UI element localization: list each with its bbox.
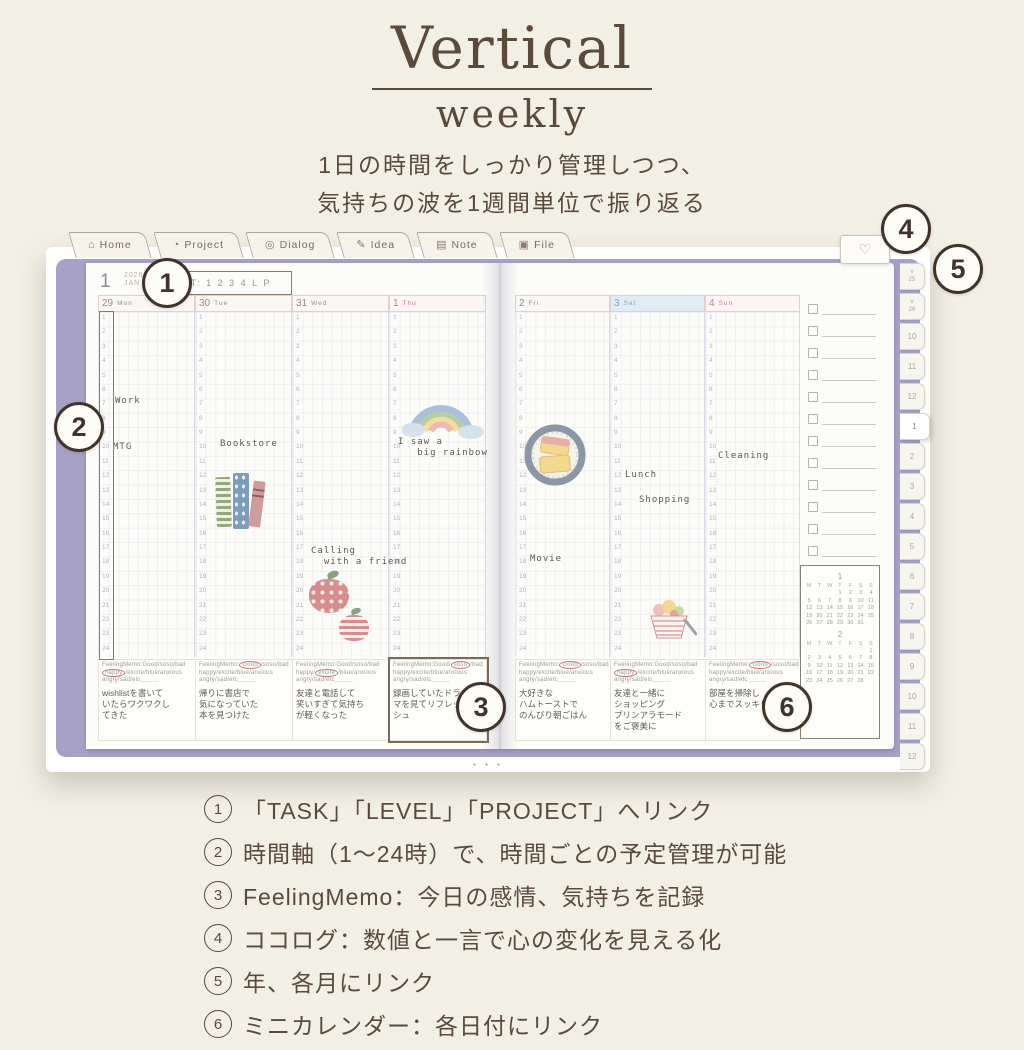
hour-tick: 2 bbox=[393, 328, 397, 335]
day-grid[interactable]: 123456789101112131415161718192021222324C… bbox=[705, 312, 800, 657]
hour-tick: 1 bbox=[296, 314, 300, 321]
hour-tick: 13 bbox=[199, 487, 206, 494]
feeling-memo-options: angry/sad/etc＿＿＿ bbox=[519, 677, 607, 685]
day-column-thu[interactable]: 1Thu123456789101112131415161718192021222… bbox=[389, 295, 486, 657]
page-gutter bbox=[482, 263, 518, 749]
pencil-icon: ✎ bbox=[356, 240, 365, 251]
legend-text: ミニカレンダー：各日付にリンク bbox=[243, 1007, 603, 1041]
mini-calendar-day bbox=[855, 648, 865, 656]
feeling-memo-options: happy/excite/blue/anxious bbox=[614, 670, 702, 678]
page-subtitle: weekly bbox=[0, 92, 1024, 136]
mini-calendar-day[interactable]: 17 bbox=[814, 670, 824, 678]
hour-tick: 2 bbox=[614, 328, 618, 335]
day-header: 3Sat bbox=[610, 295, 705, 312]
day-of-week: Sat bbox=[624, 300, 637, 307]
hour-tick: 15 bbox=[296, 515, 303, 522]
hour-tick: 5 bbox=[393, 372, 397, 379]
feeling-memo-cell[interactable]: FeelingMemo:Good/soso/badhappy/excite/bl… bbox=[515, 659, 611, 741]
mini-calendar: 1MTWTFSS12345678910111213141516171819202… bbox=[800, 565, 880, 739]
hour-tick: 12 bbox=[199, 472, 206, 479]
index-tab-10[interactable]: 10 bbox=[900, 683, 925, 710]
hour-tick: 13 bbox=[296, 487, 303, 494]
legend-item: 3FeelingMemo：今日の感情、気持ちを記録 bbox=[204, 878, 787, 912]
day-grid[interactable]: 123456789101112131415161718192021222324B… bbox=[195, 312, 292, 657]
hour-tick: 16 bbox=[393, 530, 400, 537]
hour-tick: 4 bbox=[519, 357, 523, 364]
checkbox[interactable] bbox=[808, 546, 818, 556]
checkbox[interactable] bbox=[808, 502, 818, 512]
circled-mood: Good bbox=[749, 661, 770, 669]
mini-calendar-day[interactable]: 21 bbox=[825, 613, 835, 621]
mini-calendar-day[interactable]: 5 bbox=[804, 598, 814, 606]
checkbox[interactable] bbox=[808, 370, 818, 380]
mini-calendar-day[interactable]: 1 bbox=[835, 590, 845, 598]
hour-tick: 8 bbox=[709, 415, 713, 422]
checkbox[interactable] bbox=[808, 480, 818, 490]
feeling-memo-options: FeelingMemo:Good/soso/bad bbox=[199, 662, 289, 670]
hour-tick: 12 bbox=[614, 472, 621, 479]
parfait-sticker bbox=[641, 600, 697, 655]
hour-tick: 20 bbox=[199, 587, 206, 594]
handwritten-entry: Shopping bbox=[639, 495, 690, 506]
mini-calendar-day[interactable]: 6 bbox=[814, 598, 824, 606]
mini-calendar-month-title[interactable]: 1 bbox=[804, 572, 876, 581]
checklist-row[interactable] bbox=[808, 315, 876, 337]
hour-tick: 20 bbox=[614, 587, 621, 594]
legend-text: FeelingMemo：今日の感情、気持ちを記録 bbox=[243, 878, 705, 912]
mini-calendar-dow: W bbox=[825, 640, 835, 648]
feeling-memo-note: wishlistを書いて いたらワクワクし てきた bbox=[102, 688, 192, 721]
mini-calendar-day[interactable]: 16 bbox=[804, 670, 814, 678]
mini-calendar-day[interactable]: 28 bbox=[825, 620, 835, 628]
checkbox[interactable] bbox=[808, 524, 818, 534]
hour-tick: 23 bbox=[393, 630, 400, 637]
hour-tick: 4 bbox=[199, 357, 203, 364]
mini-calendar-day[interactable]: 12 bbox=[804, 605, 814, 613]
mini-calendar-day bbox=[845, 648, 855, 656]
mini-calendar-day[interactable]: 8 bbox=[835, 598, 845, 606]
hour-tick: 4 bbox=[393, 357, 397, 364]
hour-tick: 14 bbox=[519, 501, 526, 508]
mini-calendar-day[interactable]: 15 bbox=[866, 663, 876, 671]
hour-tick: 15 bbox=[519, 515, 526, 522]
circled-mood: Good bbox=[239, 661, 260, 669]
hour-tick: 15 bbox=[709, 515, 716, 522]
day-grid[interactable]: 123456789101112131415161718192021222324L… bbox=[610, 312, 705, 657]
checklist-row[interactable] bbox=[808, 337, 876, 359]
hour-tick: 23 bbox=[709, 630, 716, 637]
callout-6: 6 bbox=[762, 682, 812, 732]
tab-project[interactable]: ◔Project bbox=[157, 232, 240, 258]
mini-calendar-day[interactable]: 8 bbox=[866, 655, 876, 663]
mini-calendar-day[interactable]: 27 bbox=[845, 678, 855, 686]
title-underline bbox=[372, 88, 652, 90]
hour-tick: 15 bbox=[614, 515, 621, 522]
hour-tick: 16 bbox=[709, 530, 716, 537]
mini-calendar-day[interactable]: 12 bbox=[835, 663, 845, 671]
legend-item: 6ミニカレンダー：各日付にリンク bbox=[204, 1007, 787, 1041]
mini-calendar-dow: T bbox=[814, 582, 824, 590]
checklist-line bbox=[822, 348, 876, 359]
mini-calendar-day[interactable]: 30 bbox=[845, 620, 855, 628]
mini-calendar-day[interactable]: 21 bbox=[855, 670, 865, 678]
index-tab-6[interactable]: 6 bbox=[900, 563, 925, 590]
apples-sticker bbox=[307, 571, 371, 645]
hour-tick: 2 bbox=[709, 328, 713, 335]
year-label: 2026 bbox=[124, 272, 144, 280]
mini-calendar-day bbox=[835, 648, 845, 656]
hour-tick: 5 bbox=[296, 372, 300, 379]
checklist-line bbox=[822, 370, 876, 381]
mini-calendar-day[interactable]: 31 bbox=[855, 620, 865, 628]
mini-calendar-day[interactable]: 11 bbox=[825, 663, 835, 671]
books-sticker bbox=[216, 473, 262, 529]
mini-calendar-day[interactable]: 26 bbox=[804, 620, 814, 628]
mini-calendar-month-title[interactable]: 2 bbox=[804, 630, 876, 639]
feeling-memo-cell[interactable]: FeelingMemo:Good/soso/badhappy/excite/bl… bbox=[196, 659, 293, 741]
checklist-row[interactable] bbox=[808, 513, 876, 535]
hour-tick: 18 bbox=[614, 558, 621, 565]
tab-note[interactable]: ▤Note bbox=[420, 232, 494, 258]
index-tab-11[interactable]: 11 bbox=[900, 713, 925, 740]
mini-calendar-day[interactable]: 13 bbox=[814, 605, 824, 613]
hour-tick: 8 bbox=[519, 415, 523, 422]
hour-tick: 24 bbox=[296, 645, 303, 652]
mini-calendar-day[interactable]: 27 bbox=[814, 620, 824, 628]
hour-tick: 15 bbox=[199, 515, 206, 522]
hour-tick: 19 bbox=[709, 573, 716, 580]
handwritten-entry: I saw a big rainbow bbox=[398, 437, 488, 459]
hour-tick: 21 bbox=[199, 602, 206, 609]
checkbox[interactable] bbox=[808, 458, 818, 468]
hour-tick: 7 bbox=[614, 400, 618, 407]
hour-tick: 10 bbox=[614, 443, 621, 450]
mini-calendar-day[interactable]: 3 bbox=[855, 590, 865, 598]
hour-tick: 5 bbox=[199, 372, 203, 379]
mini-calendar-day[interactable]: 24 bbox=[855, 613, 865, 621]
index-tab-3[interactable]: 3 bbox=[900, 473, 925, 500]
index-tab-9[interactable]: 9 bbox=[900, 653, 925, 680]
hour-tick: 20 bbox=[709, 587, 716, 594]
hour-tick: 8 bbox=[393, 415, 397, 422]
hour-tick: 17 bbox=[614, 544, 621, 551]
checklist-line bbox=[822, 436, 876, 447]
checkbox[interactable] bbox=[808, 326, 818, 336]
day-column-sun[interactable]: 4Sun123456789101112131415161718192021222… bbox=[705, 295, 800, 657]
mini-calendar-day[interactable]: 1 bbox=[866, 648, 876, 656]
checklist-row[interactable] bbox=[808, 403, 876, 425]
day-of-week: Fri bbox=[529, 300, 540, 307]
hour-tick: 24 bbox=[199, 645, 206, 652]
feeling-memo-options: happy/excite/blue/anxious bbox=[709, 670, 797, 678]
hour-tick: 9 bbox=[709, 429, 713, 436]
hour-tick: 11 bbox=[296, 458, 303, 465]
legend-number-badge: 1 bbox=[204, 795, 232, 823]
hour-tick: 16 bbox=[296, 530, 303, 537]
index-tab-4[interactable]: 4 bbox=[900, 503, 925, 530]
hour-tick: 10 bbox=[709, 443, 716, 450]
hour-tick: 22 bbox=[519, 616, 526, 623]
mini-calendar-day bbox=[804, 648, 814, 656]
mini-calendar-day[interactable]: 14 bbox=[855, 663, 865, 671]
circled-mood: excite bbox=[315, 669, 338, 677]
day-date: 4 bbox=[709, 298, 715, 309]
hour-tick: 17 bbox=[709, 544, 716, 551]
hour-tick: 21 bbox=[296, 602, 303, 609]
mini-calendar-day[interactable]: 29 bbox=[835, 620, 845, 628]
mini-calendar-day[interactable]: 17 bbox=[855, 605, 865, 613]
toast-sticker bbox=[524, 424, 586, 491]
checklist-row[interactable] bbox=[808, 491, 876, 513]
legend-number-badge: 2 bbox=[204, 838, 232, 866]
hour-tick: 23 bbox=[519, 630, 526, 637]
circled-mood: soso bbox=[451, 661, 470, 669]
checkbox[interactable] bbox=[808, 304, 818, 314]
mini-calendar-day[interactable]: 11 bbox=[866, 598, 876, 606]
hour-tick: 19 bbox=[519, 573, 526, 580]
feeling-memo-row-right: FeelingMemo:Good/soso/badhappy/excite/bl… bbox=[515, 659, 801, 741]
hour-tick: 13 bbox=[393, 487, 400, 494]
mini-calendar-day[interactable]: 9 bbox=[845, 598, 855, 606]
callout-1: 1 bbox=[142, 258, 192, 308]
year-month-label: 2026 JAN bbox=[124, 272, 144, 288]
day-date: 3 bbox=[614, 298, 620, 309]
legend-item: 4ココログ：数値と一言で心の変化を見える化 bbox=[204, 921, 787, 955]
checklist-row[interactable] bbox=[808, 381, 876, 403]
callout-4: 4 bbox=[881, 204, 931, 254]
handwritten-entry: Work bbox=[115, 396, 141, 407]
callout-2: 2 bbox=[54, 402, 104, 452]
hour-tick: 11 bbox=[614, 458, 621, 465]
checklist-row[interactable] bbox=[808, 535, 876, 557]
day-column-wed[interactable]: 31Wed12345678910111213141516171819202122… bbox=[292, 295, 389, 657]
feeling-memo-options: angry/sad/etc＿＿＿ bbox=[102, 677, 192, 685]
feeling-memo-cell[interactable]: FeelingMemo:Good/soso/badhappy/excite/bl… bbox=[293, 659, 390, 741]
feeling-memo-cell[interactable]: FeelingMemo:Good/soso/badhappy/excite/bl… bbox=[611, 659, 706, 741]
feeling-memo-options: FeelingMemo:Good/soso/bad bbox=[393, 662, 483, 670]
hour-tick: 3 bbox=[199, 343, 203, 350]
feeling-memo-row-left: FeelingMemo:Good/soso/badhappy/excite/bl… bbox=[98, 659, 487, 741]
hour-tick: 4 bbox=[296, 357, 300, 364]
mini-calendar-day bbox=[814, 590, 824, 598]
mini-calendar-day[interactable]: 9 bbox=[804, 663, 814, 671]
mini-calendar-day[interactable]: 22 bbox=[866, 670, 876, 678]
hour-tick: 19 bbox=[296, 573, 303, 580]
feeling-memo-note: 大好きな ハムトーストで のんびり朝ごはん bbox=[519, 688, 607, 721]
mini-calendar-day[interactable]: 10 bbox=[814, 663, 824, 671]
day-column-sat[interactable]: 3Sat123456789101112131415161718192021222… bbox=[610, 295, 705, 657]
index-tab-7[interactable]: 7 bbox=[900, 593, 925, 620]
hour-tick: 18 bbox=[199, 558, 206, 565]
hour-tick: 3 bbox=[393, 343, 397, 350]
day-column-mon[interactable]: 29Mon12345678910111213141516171819202122… bbox=[98, 295, 195, 657]
mini-calendar-day[interactable]: 28 bbox=[855, 678, 865, 686]
hour-tick: 7 bbox=[393, 400, 397, 407]
mini-calendar-day[interactable]: 20 bbox=[845, 670, 855, 678]
hour-tick: 2 bbox=[199, 328, 203, 335]
legend-number-badge: 5 bbox=[204, 967, 232, 995]
index-tab-12[interactable]: 12 bbox=[900, 383, 925, 410]
hour-tick: 9 bbox=[614, 429, 618, 436]
index-tab-12[interactable]: 12 bbox=[900, 743, 925, 770]
mini-calendar-day[interactable]: 20 bbox=[814, 613, 824, 621]
mini-calendar-day[interactable]: 18 bbox=[866, 605, 876, 613]
day-grid[interactable]: 123456789101112131415161718192021222324I… bbox=[389, 312, 486, 657]
target-icon: ◎ bbox=[265, 240, 275, 251]
mini-calendar-day[interactable]: 10 bbox=[855, 598, 865, 606]
index-tab-Y25[interactable]: Y25 bbox=[900, 263, 925, 290]
feeling-memo-cell[interactable]: FeelingMemo:Good/soso/badhappy/excite/bl… bbox=[98, 659, 196, 741]
mini-calendar-day[interactable]: 13 bbox=[845, 663, 855, 671]
circled-mood: Good bbox=[559, 661, 580, 669]
mini-calendar-day[interactable]: 25 bbox=[866, 613, 876, 621]
mini-calendar-day[interactable]: 23 bbox=[845, 613, 855, 621]
hour-tick: 14 bbox=[296, 501, 303, 508]
feeling-memo-options: angry/sad/etc＿＿＿ bbox=[614, 677, 702, 685]
checkbox[interactable] bbox=[808, 392, 818, 402]
hour-tick: 5 bbox=[519, 372, 523, 379]
hour-tick: 17 bbox=[296, 544, 303, 551]
legend-text: 年、各月にリンク bbox=[243, 964, 435, 998]
hour-tick: 6 bbox=[519, 386, 523, 393]
tab-idea[interactable]: ✎Idea bbox=[340, 232, 411, 258]
mini-calendar-day[interactable]: 24 bbox=[814, 678, 824, 686]
hour-tick: 1 bbox=[614, 314, 618, 321]
tab-label: Note bbox=[451, 239, 477, 251]
mini-calendar-grid: MTWTFSS123456789101112131415161718192021… bbox=[804, 582, 876, 628]
legend-text: 時間軸（1～24時）で、時間ごとの予定管理が可能 bbox=[243, 835, 787, 869]
mini-calendar-day bbox=[866, 620, 876, 628]
day-grid[interactable]: 123456789101112131415161718192021222324C… bbox=[292, 312, 389, 657]
hour-tick: 20 bbox=[393, 587, 400, 594]
hour-tick: 21 bbox=[709, 602, 716, 609]
hour-tick: 1 bbox=[393, 314, 397, 321]
checkbox[interactable] bbox=[808, 436, 818, 446]
hour-tick: 22 bbox=[199, 616, 206, 623]
checklist-line bbox=[822, 414, 876, 425]
index-tab-8[interactable]: 8 bbox=[900, 623, 925, 650]
day-date: 29 bbox=[102, 298, 113, 309]
mini-calendar-day[interactable]: 19 bbox=[835, 670, 845, 678]
mini-calendar-day[interactable]: 15 bbox=[835, 605, 845, 613]
hour-tick: 6 bbox=[709, 386, 713, 393]
day-header: 1Thu bbox=[389, 295, 486, 312]
tab-file[interactable]: ▣File bbox=[503, 232, 571, 258]
mini-calendar-dow: F bbox=[845, 582, 855, 590]
checklist-row[interactable] bbox=[808, 359, 876, 381]
day-column-tue[interactable]: 30Tue12345678910111213141516171819202122… bbox=[195, 295, 292, 657]
index-tab-Y26[interactable]: Y26 bbox=[900, 293, 925, 320]
hour-tick: 6 bbox=[296, 386, 300, 393]
mini-calendar-day[interactable]: 7 bbox=[855, 655, 865, 663]
mini-calendar-day[interactable]: 2 bbox=[845, 590, 855, 598]
mini-calendar-day[interactable]: 22 bbox=[835, 613, 845, 621]
mini-calendar-day[interactable]: 16 bbox=[845, 605, 855, 613]
mini-calendar-day[interactable]: 23 bbox=[804, 678, 814, 686]
tab-label: Project bbox=[184, 239, 224, 251]
mini-calendar-day[interactable]: 4 bbox=[825, 655, 835, 663]
hour-tick: 6 bbox=[614, 386, 618, 393]
checklist-row[interactable] bbox=[808, 425, 876, 447]
checklist-row[interactable] bbox=[808, 469, 876, 491]
hour-tick: 22 bbox=[393, 616, 400, 623]
hour-tick: 1 bbox=[519, 314, 523, 321]
hour-tick: 24 bbox=[614, 645, 621, 652]
month-number[interactable]: 1 bbox=[100, 271, 111, 293]
mini-calendar-day[interactable]: 26 bbox=[835, 678, 845, 686]
hour-tick: 17 bbox=[519, 544, 526, 551]
feeling-memo-note: 友達と電話して 笑いすぎて気持ち が軽くなった bbox=[296, 688, 386, 721]
hour-tick: 8 bbox=[199, 415, 203, 422]
checkbox[interactable] bbox=[808, 348, 818, 358]
tab-dialog[interactable]: ◎Dialog bbox=[249, 232, 331, 258]
tab-home[interactable]: ⌂Home bbox=[72, 232, 148, 258]
hour-tick: 4 bbox=[614, 357, 618, 364]
checklist-line bbox=[822, 326, 876, 337]
index-tab-2[interactable]: 2 bbox=[900, 443, 925, 470]
mini-calendar-day[interactable]: 7 bbox=[825, 598, 835, 606]
index-tab-1[interactable]: 1 bbox=[900, 413, 930, 440]
hour-tick: 3 bbox=[519, 343, 523, 350]
feeling-memo-options: happy/excite/blue/anxious bbox=[199, 670, 289, 678]
hour-tick: 12 bbox=[709, 472, 716, 479]
checklist-row[interactable] bbox=[808, 293, 876, 315]
hour-tick: 20 bbox=[296, 587, 303, 594]
mini-calendar-day[interactable]: 4 bbox=[866, 590, 876, 598]
folder-icon: ▣ bbox=[519, 240, 529, 251]
hour-tick: 22 bbox=[709, 616, 716, 623]
mini-calendar-day[interactable]: 2 bbox=[804, 655, 814, 663]
hour-tick: 12 bbox=[393, 472, 400, 479]
hour-tick: 9 bbox=[199, 429, 203, 436]
day-of-week: Tue bbox=[214, 300, 228, 307]
mini-calendar-day[interactable]: 5 bbox=[835, 655, 845, 663]
hour-tick: 13 bbox=[614, 487, 621, 494]
mini-calendar-day[interactable]: 25 bbox=[825, 678, 835, 686]
hour-tick: 17 bbox=[199, 544, 206, 551]
mini-calendar-dow: S bbox=[866, 640, 876, 648]
feeling-memo-options: happy/excite/blue/anxious bbox=[519, 670, 607, 678]
mini-calendar-day[interactable]: 19 bbox=[804, 613, 814, 621]
circled-mood: happy bbox=[102, 669, 125, 677]
index-tab-5[interactable]: 5 bbox=[900, 533, 925, 560]
mini-calendar-day[interactable]: 18 bbox=[825, 670, 835, 678]
checkbox[interactable] bbox=[808, 414, 818, 424]
tagline-line2: 気持ちの波を1週間単位で振り返る bbox=[0, 184, 1024, 222]
mini-calendar-dow: M bbox=[804, 582, 814, 590]
hour-tick: 23 bbox=[199, 630, 206, 637]
index-tab-10[interactable]: 10 bbox=[900, 323, 925, 350]
mini-calendar-day[interactable]: 6 bbox=[845, 655, 855, 663]
day-column-fri[interactable]: 2Fri123456789101112131415161718192021222… bbox=[515, 295, 610, 657]
hour-tick: 16 bbox=[519, 530, 526, 537]
mini-calendar-day[interactable]: 3 bbox=[814, 655, 824, 663]
checklist-row[interactable] bbox=[808, 447, 876, 469]
index-tab-11[interactable]: 11 bbox=[900, 353, 925, 380]
day-header: 4Sun bbox=[705, 295, 800, 312]
mini-calendar-dow: S bbox=[855, 582, 865, 590]
month-abbr-label: JAN bbox=[124, 280, 144, 288]
mini-calendar-day[interactable]: 14 bbox=[825, 605, 835, 613]
heart-icon: ♡ bbox=[859, 241, 872, 258]
checklist-line bbox=[822, 458, 876, 469]
mini-calendar-dow: S bbox=[866, 582, 876, 590]
hour-tick: 18 bbox=[296, 558, 303, 565]
day-grid[interactable]: 123456789101112131415161718192021222324W… bbox=[98, 312, 195, 657]
mini-calendar-day bbox=[804, 590, 814, 598]
day-grid[interactable]: 123456789101112131415161718192021222324M… bbox=[515, 312, 610, 657]
mini-calendar-dow: T bbox=[835, 640, 845, 648]
